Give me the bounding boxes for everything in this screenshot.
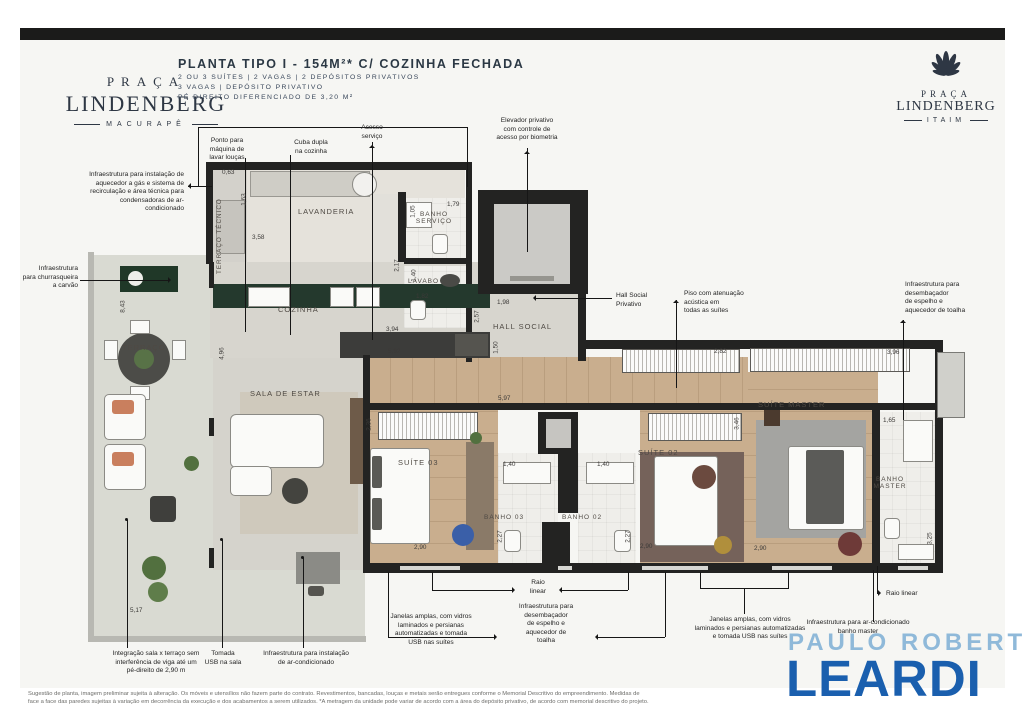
annotation-linear-radius-right: Raio linear xyxy=(886,590,936,599)
leader-line xyxy=(527,148,528,252)
powder-toilet xyxy=(410,300,426,320)
pouf xyxy=(838,532,862,556)
sofa xyxy=(230,414,324,468)
dimension: 2,90 xyxy=(414,544,426,551)
duvet xyxy=(806,450,844,524)
arrowhead xyxy=(900,317,906,323)
leader-line xyxy=(560,590,628,591)
room-label-cozinha: COZINHA xyxy=(278,305,319,314)
dimension: 2,17 xyxy=(394,259,401,271)
room-label-lavabo: LAVABO xyxy=(408,278,439,285)
brand-right-praca: PRAÇA xyxy=(888,89,1004,99)
wall xyxy=(404,258,466,264)
terrace-armchair xyxy=(104,444,146,490)
dimension: 1,40 xyxy=(597,461,609,468)
dimension: 3,25 xyxy=(927,532,934,544)
dimension: 2,57 xyxy=(474,310,481,322)
wall xyxy=(398,192,406,262)
dimension: 1,50 xyxy=(493,341,500,353)
leader-line xyxy=(432,590,514,591)
palm-fan-icon xyxy=(925,46,967,86)
room-label-terraco: TERRAÇO xyxy=(122,343,166,352)
arrowhead xyxy=(185,183,191,189)
leader-dot xyxy=(220,538,223,541)
leader-line xyxy=(676,300,677,388)
annotation-linear-radius-mid: Raio linear xyxy=(522,579,554,596)
dimension: 3,96 xyxy=(887,349,899,356)
sofa-chaise xyxy=(230,466,272,496)
private-elevator-cab xyxy=(494,204,570,284)
dimension: 2,90 xyxy=(640,543,652,550)
window-glass xyxy=(772,566,832,570)
dimension: 2,82 xyxy=(714,348,726,355)
annotation-service-access: Acesso serviço xyxy=(348,124,396,141)
leader-line xyxy=(534,298,612,299)
tv-cabinet xyxy=(350,398,363,484)
dimension: 1,63 xyxy=(241,193,248,205)
terrace-plant xyxy=(142,556,166,580)
chair xyxy=(130,320,150,334)
dimension: 2,27 xyxy=(625,530,632,542)
wall xyxy=(363,355,370,570)
dimension: 1,98 xyxy=(497,299,509,306)
dimension: 3,58 xyxy=(252,234,264,241)
dimension: 3,94 xyxy=(386,326,398,333)
wall xyxy=(578,293,586,361)
annotation-windows-left: Janelas amplas, com vidros laminados e p… xyxy=(376,613,486,647)
room-label-suite-03: SUÍTE 03 xyxy=(398,458,439,467)
arrowhead xyxy=(512,587,518,593)
powder-sink xyxy=(440,274,460,287)
annotation-acoustic-floor: Piso com atenuação acústica em todas as … xyxy=(684,290,776,316)
leader-line xyxy=(372,142,373,340)
dimension: 5,17 xyxy=(130,607,142,614)
master-vanity xyxy=(898,544,934,560)
bath2-vanity xyxy=(586,462,634,484)
room-label-sala-de-estar: SALA DE ESTAR xyxy=(250,389,321,398)
arrowhead xyxy=(494,634,500,640)
annotation-gas-heater: Infraestrutura para instalação de aquece… xyxy=(86,171,184,214)
leader-line xyxy=(198,127,468,128)
room-label-banho-02: BANHO 02 xyxy=(562,514,602,521)
beanbag xyxy=(452,524,474,546)
door-post xyxy=(209,418,214,436)
grill-bowl xyxy=(128,271,143,286)
master-closet xyxy=(750,348,910,372)
brand-right-logo: PRAÇA LINDENBERG ITAIM xyxy=(888,46,1004,124)
rule-right xyxy=(970,120,988,121)
window-glass xyxy=(558,566,572,570)
rule-left xyxy=(904,120,922,121)
room-label-hall-social: HALL SOCIAL xyxy=(493,322,552,331)
terrace-plant xyxy=(148,582,168,602)
nightstand xyxy=(764,410,780,426)
service-toilet xyxy=(432,234,448,254)
wall xyxy=(558,453,578,513)
title-block: PLANTA TIPO I - 154M²* C/ COZINHA FECHAD… xyxy=(178,57,608,101)
leader-line xyxy=(665,572,666,637)
wall xyxy=(206,162,213,264)
arrowhead xyxy=(530,295,536,301)
dimension: 0,63 xyxy=(222,169,234,176)
dimension: 8,43 xyxy=(120,300,127,312)
plan-subtitle-3: PÉ DIREITO DIFERENCIADO DE 3,20 M² xyxy=(178,94,608,101)
plant xyxy=(184,456,199,471)
rule-right xyxy=(192,124,218,125)
room-label-banho-servico: BANHO SERVIÇO xyxy=(404,211,464,225)
arrowhead xyxy=(592,634,598,640)
master-shower xyxy=(903,420,933,462)
room-label-suite-master: SUÍTE MASTER xyxy=(758,400,825,409)
annotation-dishwasher-point: Ponto para máquina de lavar louças xyxy=(196,137,258,163)
leader-line xyxy=(628,572,629,590)
pillow xyxy=(372,456,382,488)
rule-left xyxy=(74,124,100,125)
ottoman xyxy=(692,465,716,489)
wall xyxy=(368,403,943,410)
bath3-toilet xyxy=(504,530,521,552)
desk-chair xyxy=(308,586,324,596)
cooktop xyxy=(248,287,290,307)
room-label-terraco-tecnico: TERRAÇO TÉCNICO xyxy=(216,198,223,274)
floorplan-page: PRAÇA LINDENBERG MACURAPÊ PLANTA TIPO I … xyxy=(0,0,1024,723)
plant xyxy=(470,432,482,444)
dimension: 3,46 xyxy=(734,417,741,429)
chair xyxy=(104,340,118,360)
annotation-ac-infrastructure: Infraestrutura para instalação de ar-con… xyxy=(256,650,356,667)
dimension: 1,65 xyxy=(883,417,895,424)
arrowhead xyxy=(369,142,375,148)
dimension: 5,92 xyxy=(388,348,400,355)
leader-line xyxy=(700,572,701,588)
legal-disclaimer: Sugestão de planta, imagem preliminar su… xyxy=(28,690,773,707)
annotation-double-sink: Cuba dupla na cozinha xyxy=(281,139,341,156)
arrowhead xyxy=(556,587,562,593)
window-glass xyxy=(400,566,460,570)
coffee-table xyxy=(282,478,308,504)
legal-line-1: Sugestão de planta, imagem preliminar su… xyxy=(28,690,773,698)
brand-right-lindenberg: LINDENBERG xyxy=(888,99,1004,115)
leader-line xyxy=(80,280,168,281)
annotation-private-elevator: Elevador privativo com controle de acess… xyxy=(477,117,577,143)
shaft-core xyxy=(546,419,571,448)
leader-line xyxy=(432,572,433,590)
dimension: 1,82 xyxy=(416,293,428,300)
annotation-mirror-defogger-right: Infraestrutura para desembaçador de espe… xyxy=(905,281,999,315)
annotation-charcoal-grill: Infraestrutura para churrasqueira a carv… xyxy=(22,265,78,291)
cushion xyxy=(112,400,134,414)
leader-line xyxy=(303,558,304,648)
dimension: 5,97 xyxy=(498,395,510,402)
ac-ledge xyxy=(937,352,965,418)
washing-machine xyxy=(352,172,377,197)
leader-dot xyxy=(301,556,304,559)
pillow xyxy=(372,498,382,530)
terrace-floor-bottom xyxy=(213,570,365,636)
dimension: 1,79 xyxy=(447,201,459,208)
master-toilet xyxy=(884,518,900,539)
elevator-door xyxy=(510,276,554,281)
arrowhead xyxy=(168,277,174,283)
fridge xyxy=(455,334,488,356)
room-label-lavanderia: LAVANDERIA xyxy=(298,207,354,216)
leader-line xyxy=(467,127,468,187)
leader-line xyxy=(222,540,223,648)
suite3-closet xyxy=(378,412,478,440)
window-glass xyxy=(642,566,708,570)
plan-title: PLANTA TIPO I - 154M²* C/ COZINHA FECHAD… xyxy=(178,57,608,71)
dimension: 4,96 xyxy=(219,347,226,359)
leader-line xyxy=(596,637,665,638)
arrowhead xyxy=(524,148,530,154)
leader-line xyxy=(744,588,745,614)
room-label-banho-master: BANHO MASTER xyxy=(862,476,918,490)
chair xyxy=(172,340,186,360)
dimension: 2,27 xyxy=(497,530,504,542)
shaft xyxy=(542,522,570,566)
annotation-private-hall: Hall Social Privativo xyxy=(616,292,686,309)
legal-line-2: face a face das paredes sujeitas à varia… xyxy=(28,698,773,706)
brand-right-itaim: ITAIM xyxy=(888,117,1004,124)
plan-subtitle-2: 3 VAGAS | DEPÓSITO PRIVATIVO xyxy=(178,84,608,91)
leader-line xyxy=(188,186,212,187)
service-hall-floor xyxy=(372,194,398,262)
table-plant xyxy=(134,349,154,369)
leader-line xyxy=(873,570,874,622)
cushion xyxy=(112,452,134,466)
plan-subtitle-1: 2 OU 3 SUÍTES | 2 VAGAS | 2 DEPÓSITOS PR… xyxy=(178,74,608,81)
kitchen-sink-2 xyxy=(356,287,380,307)
realtor-wordmark: LEARDI xyxy=(786,649,1016,708)
window-glass xyxy=(898,566,928,570)
leader-dot xyxy=(125,518,128,521)
terrace-railing-bottom xyxy=(88,636,366,642)
dimension: 2,90 xyxy=(754,545,766,552)
leader-line xyxy=(903,320,904,420)
arrowhead xyxy=(878,590,884,596)
annotation-mirror-defogger-mid: Infraestrutura para desembaçador de espe… xyxy=(504,603,588,646)
leader-line xyxy=(245,158,246,332)
leader-line xyxy=(788,572,789,588)
door-post xyxy=(209,262,214,288)
stool xyxy=(714,536,732,554)
dimension: 1,40 xyxy=(503,461,515,468)
leader-line xyxy=(127,520,128,648)
side-table xyxy=(150,496,176,522)
suite2-closet xyxy=(648,413,742,441)
room-label-suite-02: SUÍTE 02 xyxy=(638,448,679,457)
kitchen-sink-1 xyxy=(330,287,354,307)
annotation-usb-outlet: Tomada USB na sala xyxy=(196,650,250,667)
dimension: 2,36 xyxy=(366,418,373,430)
door-post xyxy=(209,548,214,568)
top-bar xyxy=(20,28,1005,40)
room-label-banho-03: BANHO 03 xyxy=(484,514,524,521)
